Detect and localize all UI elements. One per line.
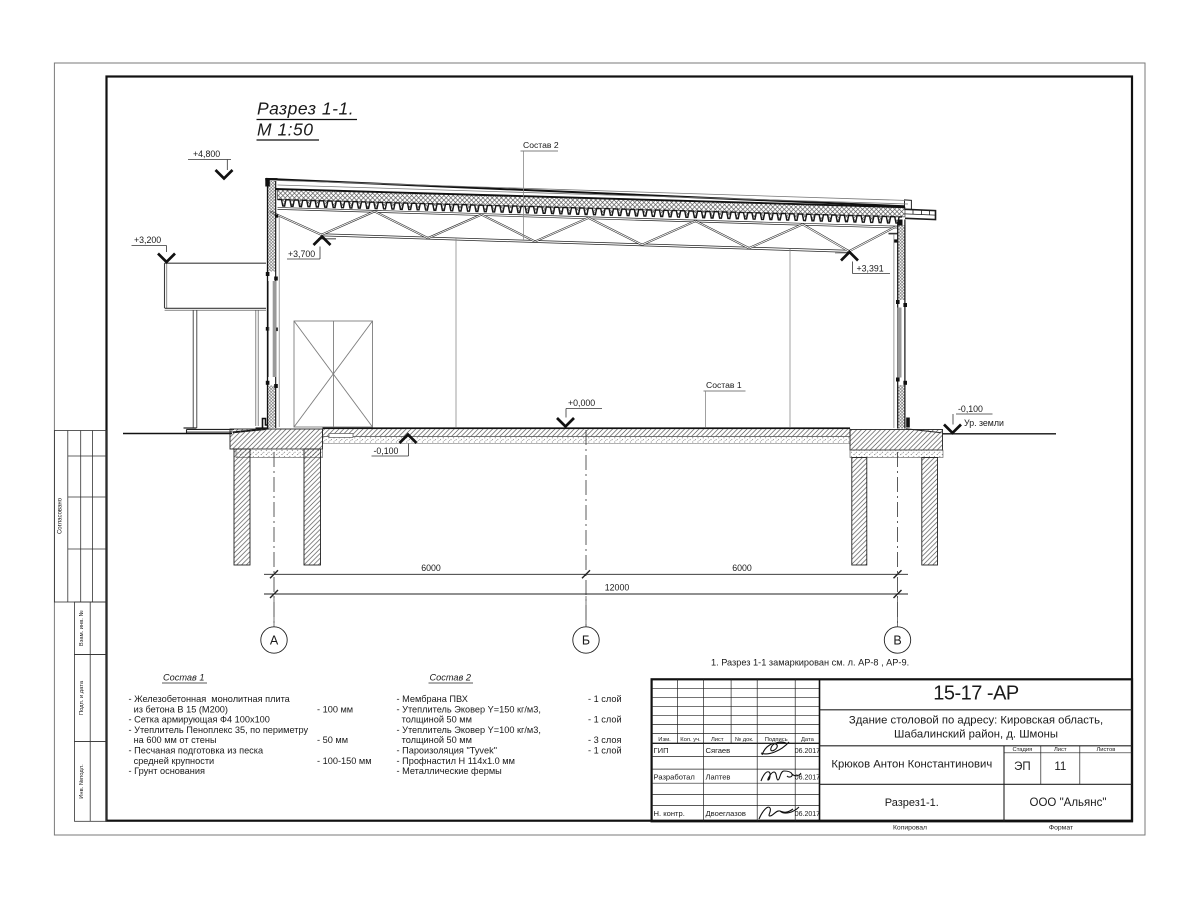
svg-text:- 3 слоя: - 3 слоя — [588, 735, 621, 745]
svg-text:+3,200: +3,200 — [134, 235, 161, 245]
svg-text:Формат: Формат — [1049, 825, 1073, 832]
svg-text:- Сетка армирующая Ф4 100х100: - Сетка армирующая Ф4 100х100 — [129, 715, 270, 725]
svg-text:Подп. и дата: Подп. и дата — [79, 680, 85, 715]
svg-text:Лист: Лист — [1054, 747, 1067, 753]
svg-text:15-17 -АР: 15-17 -АР — [933, 683, 1019, 705]
svg-text:- 50 мм: - 50 мм — [317, 735, 348, 745]
svg-text:- Пароизоляция "Tyvek": - Пароизоляция "Tyvek" — [397, 746, 497, 756]
svg-text:Изм.: Изм. — [658, 737, 671, 743]
svg-text:Двоеглазов: Двоеглазов — [706, 809, 746, 818]
svg-text:- Металлические фермы: - Металлические фермы — [397, 766, 502, 776]
svg-text:+3,700: +3,700 — [288, 249, 315, 259]
svg-text:Кол. уч.: Кол. уч. — [680, 737, 701, 743]
svg-text:из бетона В 15 (М200): из бетона В 15 (М200) — [129, 704, 228, 714]
svg-text:ООО "Альянс": ООО "Альянс" — [1030, 797, 1107, 809]
svg-text:+0,000: +0,000 — [568, 398, 595, 408]
svg-text:11: 11 — [1054, 761, 1066, 773]
svg-text:Разработал: Разработал — [654, 772, 695, 781]
svg-text:Ур. земли: Ур. земли — [964, 418, 1004, 428]
svg-text:- Утеплитель Эковер Y=100 кг/м: - Утеплитель Эковер Y=100 кг/м3, — [397, 725, 541, 735]
svg-text:- Железобетонная монолитная п: - Железобетонная монолитная плита — [129, 694, 291, 704]
svg-text:толщиной 50 мм: толщиной 50 мм — [397, 735, 472, 745]
svg-text:Согласовано: Согласовано — [58, 497, 64, 534]
svg-text:6000: 6000 — [732, 563, 752, 573]
svg-text:- Утеплитель Пеноплекс 35, по: - Утеплитель Пеноплекс 35, по периметру — [129, 725, 309, 735]
svg-text:+3,391: +3,391 — [857, 264, 884, 274]
svg-text:- 100-150 мм: - 100-150 мм — [317, 756, 372, 766]
svg-text:- Утеплитель Эковер Y=150 кг/м: - Утеплитель Эковер Y=150 кг/м3, — [397, 704, 541, 714]
svg-text:- Мембрана ПВХ: - Мембрана ПВХ — [397, 694, 468, 704]
svg-text:-0,100: -0,100 — [958, 404, 983, 414]
svg-text:Копировал: Копировал — [893, 825, 927, 832]
svg-text:Шабалинский район, д. Шмоны: Шабалинский район, д. Шмоны — [894, 729, 1058, 741]
svg-text:+4,800: +4,800 — [193, 149, 220, 159]
svg-text:средней крупности: средней крупности — [129, 756, 215, 766]
svg-text:Состав 2: Состав 2 — [523, 140, 559, 150]
svg-text:6000: 6000 — [421, 563, 441, 573]
svg-text:Крюков Антон Константинович: Крюков Антон Константинович — [831, 759, 992, 771]
svg-text:- Профнастил Н 114х1.0 мм: - Профнастил Н 114х1.0 мм — [397, 756, 515, 766]
svg-text:толщиной 50 мм: толщиной 50 мм — [397, 715, 472, 725]
svg-text:06.2017: 06.2017 — [795, 811, 820, 818]
svg-text:- 1 слой: - 1 слой — [588, 715, 622, 725]
svg-text:Состав 1: Состав 1 — [706, 380, 742, 390]
svg-text:Здание столовой по адресу: Кир: Здание столовой по адресу: Кировская обл… — [849, 715, 1103, 727]
svg-text:Инв. №подл.: Инв. №подл. — [79, 764, 85, 799]
svg-text:Стадия: Стадия — [1013, 747, 1033, 753]
svg-text:- Песчаная подготовка из песка: - Песчаная подготовка из песка — [129, 746, 264, 756]
svg-text:12000: 12000 — [605, 583, 630, 593]
svg-text:Состав 2: Состав 2 — [430, 673, 471, 683]
svg-text:ГИП: ГИП — [654, 746, 669, 755]
svg-text:- 1 слой: - 1 слой — [588, 746, 622, 756]
svg-text:Лаптев: Лаптев — [706, 772, 731, 781]
svg-text:М 1:50: М 1:50 — [257, 120, 314, 140]
svg-text:Листов: Листов — [1096, 747, 1115, 753]
svg-text:В: В — [893, 634, 901, 648]
svg-text:- 1 слой: - 1 слой — [588, 694, 622, 704]
svg-text:Взам. инв. №: Взам. инв. № — [79, 610, 85, 646]
svg-text:Н. контр.: Н. контр. — [654, 809, 685, 818]
svg-text:Состав 1: Состав 1 — [163, 673, 204, 683]
svg-text:№ док.: № док. — [735, 737, 754, 743]
svg-text:ЭП: ЭП — [1014, 761, 1031, 773]
svg-text:- 100 мм: - 100 мм — [317, 704, 353, 714]
svg-text:Б: Б — [582, 634, 590, 648]
svg-text:Сягаев: Сягаев — [706, 746, 731, 755]
svg-text:- Грунт основания: - Грунт основания — [129, 766, 205, 776]
svg-text:06.2017: 06.2017 — [795, 748, 820, 755]
svg-text:Лист: Лист — [711, 737, 724, 743]
svg-text:Дата: Дата — [801, 737, 815, 743]
svg-text:на 600 мм от стены: на 600 мм от стены — [129, 735, 217, 745]
svg-text:Разрез1-1.: Разрез1-1. — [885, 797, 939, 809]
svg-text:-0,100: -0,100 — [374, 446, 399, 456]
svg-text:1. Разрез 1-1 замаркирован см.: 1. Разрез 1-1 замаркирован см. л. АР-8 ,… — [711, 658, 909, 668]
svg-text:Разрез 1-1.: Разрез 1-1. — [257, 99, 354, 119]
svg-text:А: А — [270, 634, 279, 648]
